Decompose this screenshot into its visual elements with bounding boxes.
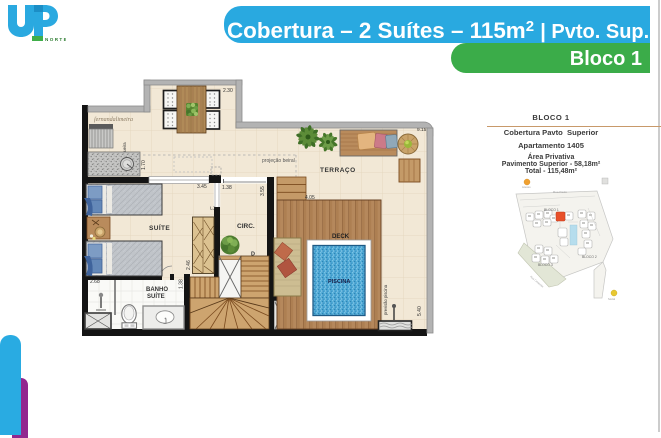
svg-text:Social: Social [608, 297, 615, 301]
svg-text:previsão piscina: previsão piscina [383, 284, 388, 315]
svg-text:2.30: 2.30 [223, 88, 233, 94]
svg-text:NORTE: NORTE [45, 37, 66, 42]
svg-text:SUÍTE: SUÍTE [149, 223, 170, 232]
svg-text:BLOCO 2: BLOCO 2 [582, 255, 597, 259]
svg-text:PISCINA: PISCINA [328, 279, 350, 285]
svg-text:LJ: LJ [210, 206, 215, 211]
svg-text:9.15: 9.15 [417, 127, 427, 133]
svg-text:TERRAÇO: TERRAÇO [320, 167, 356, 174]
svg-text:1.70: 1.70 [141, 160, 147, 170]
svg-text:Acesso: Acesso [522, 185, 531, 189]
svg-text:1.38: 1.38 [222, 185, 232, 191]
svg-text:SUÍTE: SUÍTE [147, 292, 165, 300]
svg-text:Rua Paulo: Rua Paulo [553, 190, 567, 194]
svg-text:2.46: 2.46 [186, 260, 192, 270]
svg-text:ſernandalimeira: ſernandalimeira [94, 116, 133, 123]
svg-text:DECK: DECK [332, 234, 350, 240]
svg-text:projeção beiral: projeção beiral [262, 158, 295, 164]
svg-text:BLOCO 3: BLOCO 3 [538, 263, 553, 267]
svg-text:CIRC.: CIRC. [237, 223, 255, 230]
svg-text:3.55: 3.55 [260, 186, 266, 196]
svg-text:2.68: 2.68 [90, 279, 100, 285]
svg-text:BANHO: BANHO [146, 287, 168, 293]
svg-text:4.05: 4.05 [305, 195, 315, 201]
svg-text:BLOCO 1: BLOCO 1 [544, 208, 559, 212]
svg-text:1.38: 1.38 [179, 279, 185, 289]
svg-text:3.45: 3.45 [197, 184, 207, 190]
svg-text:5.40: 5.40 [417, 306, 423, 316]
